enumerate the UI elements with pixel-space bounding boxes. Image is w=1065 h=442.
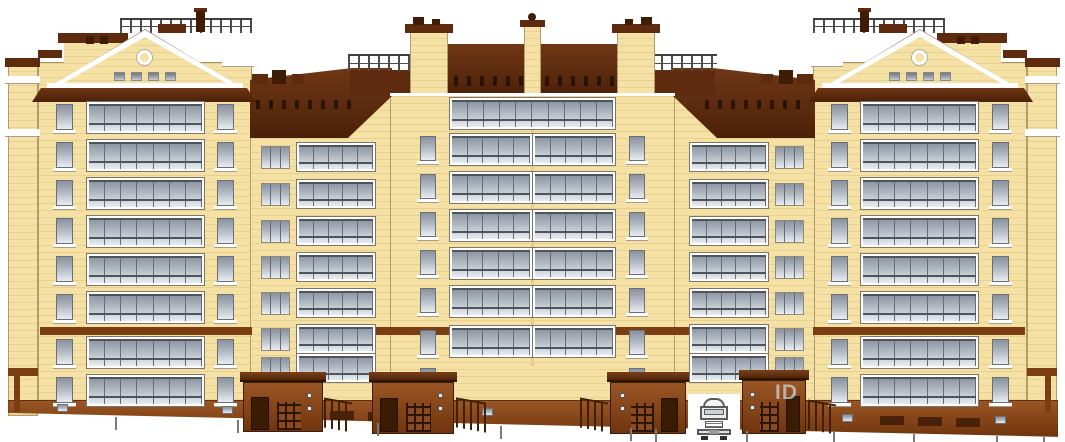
truck-wheel-left xyxy=(701,436,708,440)
window-pane xyxy=(736,255,751,279)
loggia-top-line xyxy=(535,250,613,252)
attic-window xyxy=(114,72,125,81)
railing-posts xyxy=(348,56,414,71)
window-pane xyxy=(170,339,186,366)
window-pane xyxy=(514,288,530,315)
window-pane xyxy=(154,339,170,366)
attic-window xyxy=(906,72,917,81)
balcony-rail-line xyxy=(89,199,202,201)
window-pane xyxy=(582,212,598,239)
window-pane xyxy=(499,212,515,239)
window-pane xyxy=(452,288,468,315)
tower-loggia-col-right-row-7 xyxy=(861,337,978,368)
attic-window xyxy=(148,72,159,81)
window-pane xyxy=(329,356,344,380)
tower-loggia-col-row-1 xyxy=(87,102,204,133)
basement-vent-4 xyxy=(880,416,904,425)
tower-narrow-col-outer-right-sill-7 xyxy=(989,365,1012,368)
porch-lamp-1 xyxy=(620,393,625,398)
window-pane xyxy=(358,145,373,169)
window-pane xyxy=(468,136,484,163)
window-pane xyxy=(776,221,785,242)
window-pane xyxy=(879,377,895,404)
side-return-band xyxy=(8,368,38,376)
central-pillar xyxy=(524,26,541,96)
side-return-cornice-1-right xyxy=(1025,76,1060,83)
window-pane xyxy=(722,255,737,279)
center-narrow-col-window-1 xyxy=(420,136,436,161)
loggia-top-line xyxy=(89,180,202,182)
tower-narrow-col-outer-sill-5 xyxy=(53,282,76,285)
balcony-rail-line xyxy=(299,236,373,238)
window-pane xyxy=(514,328,530,355)
side-return-cornice-1 xyxy=(5,76,40,83)
window-pane xyxy=(566,288,582,315)
window-pane xyxy=(343,327,358,351)
wing-chimney-a xyxy=(252,74,268,84)
tower-narrow-col-inner-window-6 xyxy=(217,294,234,320)
porch-canopy xyxy=(607,372,689,382)
tower-narrow-col-inner-sill-1 xyxy=(214,130,237,133)
step-railing-posts xyxy=(324,400,352,433)
window-pane xyxy=(170,294,186,321)
window-pane xyxy=(154,104,170,131)
window-pane xyxy=(483,328,499,355)
tower-narrow-col-outer-right-window-1 xyxy=(992,104,1009,130)
tower-loggia-col-row-6 xyxy=(87,292,204,323)
window-pane xyxy=(795,221,803,242)
shoulder-small-window-col-window-6 xyxy=(261,328,290,351)
window-pane xyxy=(329,291,344,315)
balcony-rail-line xyxy=(863,237,976,239)
center-narrow-col-right-sill-3 xyxy=(626,237,648,240)
window-pane xyxy=(271,257,280,278)
window-pane xyxy=(121,256,137,283)
window-pane xyxy=(516,100,532,127)
window-pane xyxy=(751,327,766,351)
shoulder-loggia-col-right-row-6 xyxy=(690,325,768,353)
truck-grille xyxy=(705,421,723,428)
window-pane xyxy=(314,145,329,169)
window-pane xyxy=(692,291,707,315)
loggia-top-line xyxy=(89,256,202,258)
window-pane xyxy=(514,136,530,163)
window-pane xyxy=(89,218,105,245)
balcony-rail-line xyxy=(692,344,766,346)
window-pane xyxy=(329,219,344,243)
porch-lamp-1 xyxy=(307,393,312,398)
window-pane xyxy=(722,219,737,243)
window-pane xyxy=(358,182,373,206)
shoulder-small-window-col-window-2 xyxy=(261,183,290,206)
window-pane xyxy=(911,218,927,245)
shoulder-loggia-col-right-row-4 xyxy=(690,253,768,281)
porch-lattice xyxy=(277,402,301,430)
loggia-top-line xyxy=(535,212,613,214)
window-pane xyxy=(879,339,895,366)
loggia-top-line xyxy=(89,377,202,379)
shoulder-small-window-col-window-1 xyxy=(261,146,290,169)
window-pane xyxy=(154,180,170,207)
wing-chimney-b xyxy=(272,70,286,84)
window-pane xyxy=(736,182,751,206)
center-narrow-col-right-window-5 xyxy=(629,288,645,313)
shoulder-loggia-col-right-row-5 xyxy=(690,289,768,317)
entrance-porch-3 xyxy=(610,372,686,434)
center-loggia-col-row-2 xyxy=(450,172,532,203)
shoulder-loggia-col-row-3 xyxy=(297,217,375,245)
window-pane xyxy=(358,219,373,243)
tower-loggia-col-right-row-4 xyxy=(861,216,978,247)
balcony-rail-line xyxy=(299,272,373,274)
basement-vent-6 xyxy=(956,418,980,427)
window-pane xyxy=(776,184,785,205)
window-pane xyxy=(928,377,944,404)
building-elevation-drawing: ID xyxy=(0,0,1065,442)
window-pane xyxy=(452,174,468,201)
window-pane xyxy=(785,221,794,242)
center-tie-band-right xyxy=(616,327,694,335)
tower-narrow-col-inner-sill-4 xyxy=(214,244,237,247)
attic-window-row xyxy=(114,72,176,81)
window-pane xyxy=(121,339,137,366)
porch-canopy xyxy=(240,372,326,382)
ground-tick-1 xyxy=(115,417,117,430)
porch-door xyxy=(661,398,678,432)
window-pane xyxy=(911,377,927,404)
center-narrow-col-right-sill-6 xyxy=(626,355,648,358)
tower-narrow-col-outer-right-sill-1 xyxy=(989,130,1012,133)
center-narrow-col-right-sill-1 xyxy=(626,161,648,164)
center-loggia-col-row-1 xyxy=(450,134,532,165)
tower-loggia-col-right-row-5 xyxy=(861,254,978,285)
window-pane xyxy=(186,377,202,404)
porch-lattice xyxy=(406,403,431,432)
window-pane xyxy=(89,294,105,321)
loggia-top-line xyxy=(692,255,766,257)
center-narrow-col-right-sill-5 xyxy=(626,313,648,316)
window-pane xyxy=(329,182,344,206)
window-pane xyxy=(863,256,879,283)
window-pane xyxy=(722,327,737,351)
balcony-rail-line xyxy=(863,275,976,277)
shoulder-small-window-col-window-5 xyxy=(261,292,290,315)
ground-tick-10 xyxy=(996,436,998,442)
loggia-top-line xyxy=(452,136,530,138)
porch-lamp-2 xyxy=(750,405,755,410)
terrace-tower-stub-2-right xyxy=(625,19,633,25)
window-pane xyxy=(692,255,707,279)
loggia-top-line xyxy=(452,100,613,102)
center-narrow-col-window-2 xyxy=(420,174,436,199)
porch-door xyxy=(251,397,269,430)
basement-vent-5 xyxy=(918,417,942,426)
pediment-base-trim xyxy=(822,83,1018,88)
window-pane xyxy=(468,174,484,201)
window-pane xyxy=(170,256,186,283)
step-railing-posts xyxy=(456,399,486,432)
center-narrow-col-window-4 xyxy=(420,250,436,275)
window-pane xyxy=(358,327,373,351)
window-pane xyxy=(299,219,314,243)
shoulder-small-window-col-right-window-4 xyxy=(775,256,804,279)
loggia-top-line xyxy=(89,339,202,341)
window-pane xyxy=(499,328,515,355)
loggia-top-line xyxy=(535,328,613,330)
window-pane xyxy=(785,257,794,278)
terrace-tower-right xyxy=(617,30,655,96)
window-pane xyxy=(281,329,289,350)
window-pane xyxy=(692,356,707,380)
window-pane xyxy=(751,255,766,279)
center-narrow-col-sill-4 xyxy=(417,275,439,278)
window-pane xyxy=(895,256,911,283)
loggia-top-line xyxy=(89,294,202,296)
tower-narrow-col-outer-window-1 xyxy=(56,104,73,130)
loggia-top-line xyxy=(692,291,766,293)
truck-plate xyxy=(709,430,719,434)
shoulder-small-window-col-window-4 xyxy=(261,256,290,279)
window-pane xyxy=(105,377,121,404)
window-pane xyxy=(879,256,895,283)
wing-chimney-b-right xyxy=(779,70,793,84)
balcony-rail-line xyxy=(452,307,530,309)
loggia-top-line xyxy=(863,104,976,106)
truck xyxy=(697,398,731,440)
side-return-cap xyxy=(5,58,40,67)
center-loggia-col-right-row-6 xyxy=(533,326,615,357)
tower-narrow-col-inner-sill-3 xyxy=(214,206,237,209)
window-pane xyxy=(170,377,186,404)
center-loggia-col-right-row-1 xyxy=(533,134,615,165)
loggia-top-line xyxy=(863,218,976,220)
balcony-rail-line xyxy=(535,155,613,157)
shoulder-small-window-col-right-window-3 xyxy=(775,220,804,243)
window-pane xyxy=(722,182,737,206)
wing-chimney-a-right xyxy=(797,74,813,84)
center-narrow-col-right-window-1 xyxy=(629,136,645,161)
window-pane xyxy=(137,294,153,321)
tower-narrow-col-inner-window-3 xyxy=(217,180,234,206)
window-pane xyxy=(483,250,499,277)
shoulder-small-window-col-right-window-5 xyxy=(775,292,804,315)
window-pane xyxy=(468,212,484,239)
window-pane xyxy=(121,294,137,321)
shoulder-loggia-col-right-row-2 xyxy=(690,180,768,208)
tower-narrow-col-outer-right-window-8 xyxy=(992,377,1009,403)
attic-window xyxy=(131,72,142,81)
window-pane xyxy=(281,293,289,314)
tower-narrow-col-inner-sill-5 xyxy=(214,282,237,285)
shoulder-small-window-col-window-3 xyxy=(261,220,290,243)
balcony-rail-line xyxy=(89,396,202,398)
tower-tie-band xyxy=(40,327,252,335)
window-pane xyxy=(452,136,468,163)
window-pane xyxy=(170,180,186,207)
window-pane xyxy=(944,142,960,169)
window-pane xyxy=(262,293,271,314)
loggia-top-line xyxy=(299,327,373,329)
window-pane xyxy=(121,142,137,169)
tower-narrow-col-outer-right-sill-6 xyxy=(989,320,1012,323)
window-pane xyxy=(452,100,468,127)
loggia-top-line xyxy=(692,219,766,221)
loggia-top-line xyxy=(452,250,530,252)
balcony-rail-line xyxy=(89,123,202,125)
window-pane xyxy=(514,250,530,277)
chimney-right xyxy=(860,11,869,32)
window-pane xyxy=(736,145,751,169)
window-pane xyxy=(535,136,551,163)
tower-narrow-col-outer-sill-7 xyxy=(53,365,76,368)
tower-loggia-col-row-3 xyxy=(87,178,204,209)
wing-chimney-c xyxy=(292,74,304,84)
window-pane xyxy=(154,294,170,321)
window-pane xyxy=(314,219,329,243)
window-pane xyxy=(751,145,766,169)
window-pane xyxy=(911,142,927,169)
balcony-rail-line xyxy=(863,123,976,125)
balcony-rail-line xyxy=(452,231,530,233)
window-pane xyxy=(960,218,976,245)
truck-wheel-right xyxy=(720,436,727,440)
window-pane xyxy=(960,377,976,404)
window-pane xyxy=(863,104,879,131)
attic-window xyxy=(940,72,951,81)
window-pane xyxy=(960,142,976,169)
tower-narrow-col-inner-right-sill-6 xyxy=(828,320,851,323)
balcony-rail-line xyxy=(692,308,766,310)
tower-narrow-col-inner-right-window-7 xyxy=(831,339,848,365)
window-pane xyxy=(170,218,186,245)
center-narrow-col-sill-2 xyxy=(417,199,439,202)
tower-narrow-col-inner-right-window-1 xyxy=(831,104,848,130)
step-railing-1 xyxy=(324,398,352,433)
tower-narrow-col-outer-right-sill-3 xyxy=(989,206,1012,209)
window-pane xyxy=(751,219,766,243)
window-pane xyxy=(105,294,121,321)
window-pane xyxy=(597,250,613,277)
loggia-top-line xyxy=(535,174,613,176)
center-loggia-col-row-3 xyxy=(450,210,532,241)
tower-narrow-col-outer-right-window-7 xyxy=(992,339,1009,365)
window-pane xyxy=(736,327,751,351)
railing-posts xyxy=(651,56,717,71)
window-pane xyxy=(89,180,105,207)
window-pane xyxy=(795,184,803,205)
window-pane xyxy=(121,377,137,404)
window-pane xyxy=(186,218,202,245)
balcony-rail-line xyxy=(535,347,613,349)
side-return-band-right xyxy=(1027,368,1057,376)
window-pane xyxy=(863,180,879,207)
window-pane xyxy=(314,182,329,206)
balcony-rail-line xyxy=(89,313,202,315)
loggia-top-line xyxy=(452,174,530,176)
balcony-rail-line xyxy=(535,231,613,233)
terrace-tower-cap xyxy=(405,24,453,33)
balcony-rail-line xyxy=(863,313,976,315)
balcony-rail-line xyxy=(692,236,766,238)
ground-tick-2 xyxy=(237,420,239,433)
window-pane xyxy=(299,255,314,279)
window-pane xyxy=(582,328,598,355)
window-pane xyxy=(692,327,707,351)
tower-eave xyxy=(32,88,256,102)
center-loggia-col-row-6 xyxy=(450,326,532,357)
window-pane xyxy=(911,104,927,131)
pediment-base-trim xyxy=(47,83,243,88)
tower-narrow-col-inner-right-window-3 xyxy=(831,180,848,206)
tower-narrow-col-outer-right-window-4 xyxy=(992,218,1009,244)
window-pane xyxy=(707,182,722,206)
window-pane xyxy=(105,142,121,169)
window-pane xyxy=(879,142,895,169)
window-pane xyxy=(262,257,271,278)
window-pane xyxy=(89,377,105,404)
window-pane xyxy=(944,104,960,131)
window-pane xyxy=(776,293,785,314)
window-pane xyxy=(186,339,202,366)
window-pane xyxy=(895,377,911,404)
tower-loggia-col-row-7 xyxy=(87,337,204,368)
window-pane xyxy=(722,291,737,315)
window-pane xyxy=(299,327,314,351)
window-pane xyxy=(154,218,170,245)
window-pane xyxy=(137,104,153,131)
tower-narrow-col-outer-sill-6 xyxy=(53,320,76,323)
window-pane xyxy=(314,291,329,315)
window-pane xyxy=(895,294,911,321)
window-pane xyxy=(776,147,785,168)
shoulder-loggia-col-row-6 xyxy=(297,325,375,353)
window-pane xyxy=(535,328,551,355)
ground-tick-11 xyxy=(1043,437,1045,442)
window-pane xyxy=(751,291,766,315)
window-pane xyxy=(582,174,598,201)
loggia-top-line xyxy=(299,145,373,147)
window-pane xyxy=(582,136,598,163)
center-loggia-col-row-5 xyxy=(450,286,532,317)
tower-narrow-col-inner-window-1 xyxy=(217,104,234,130)
entrance-porch-1 xyxy=(243,372,323,432)
terrace-tower-stub-2 xyxy=(432,19,440,25)
window-pane xyxy=(262,221,271,242)
center-narrow-col-sill-5 xyxy=(417,313,439,316)
window-pane xyxy=(281,257,289,278)
wing-chimney-c-right xyxy=(761,74,773,84)
window-pane xyxy=(468,288,484,315)
shoulder-small-window-col-right-window-6 xyxy=(775,328,804,351)
balcony-rail-line xyxy=(863,199,976,201)
center-narrow-col-sill-1 xyxy=(417,161,439,164)
window-pane xyxy=(535,250,551,277)
tower-tie-band-right xyxy=(813,327,1025,335)
loggia-top-line xyxy=(863,339,976,341)
window-pane xyxy=(299,182,314,206)
window-pane xyxy=(566,250,582,277)
window-pane xyxy=(343,255,358,279)
tower-narrow-col-inner-sill-7 xyxy=(214,365,237,368)
window-pane xyxy=(358,255,373,279)
window-pane xyxy=(137,339,153,366)
loggia-top-line xyxy=(89,142,202,144)
window-pane xyxy=(551,288,567,315)
window-pane xyxy=(863,377,879,404)
tower-narrow-col-outer-sill-3 xyxy=(53,206,76,209)
tower-narrow-col-inner-right-sill-3 xyxy=(828,206,851,209)
window-pane xyxy=(911,294,927,321)
